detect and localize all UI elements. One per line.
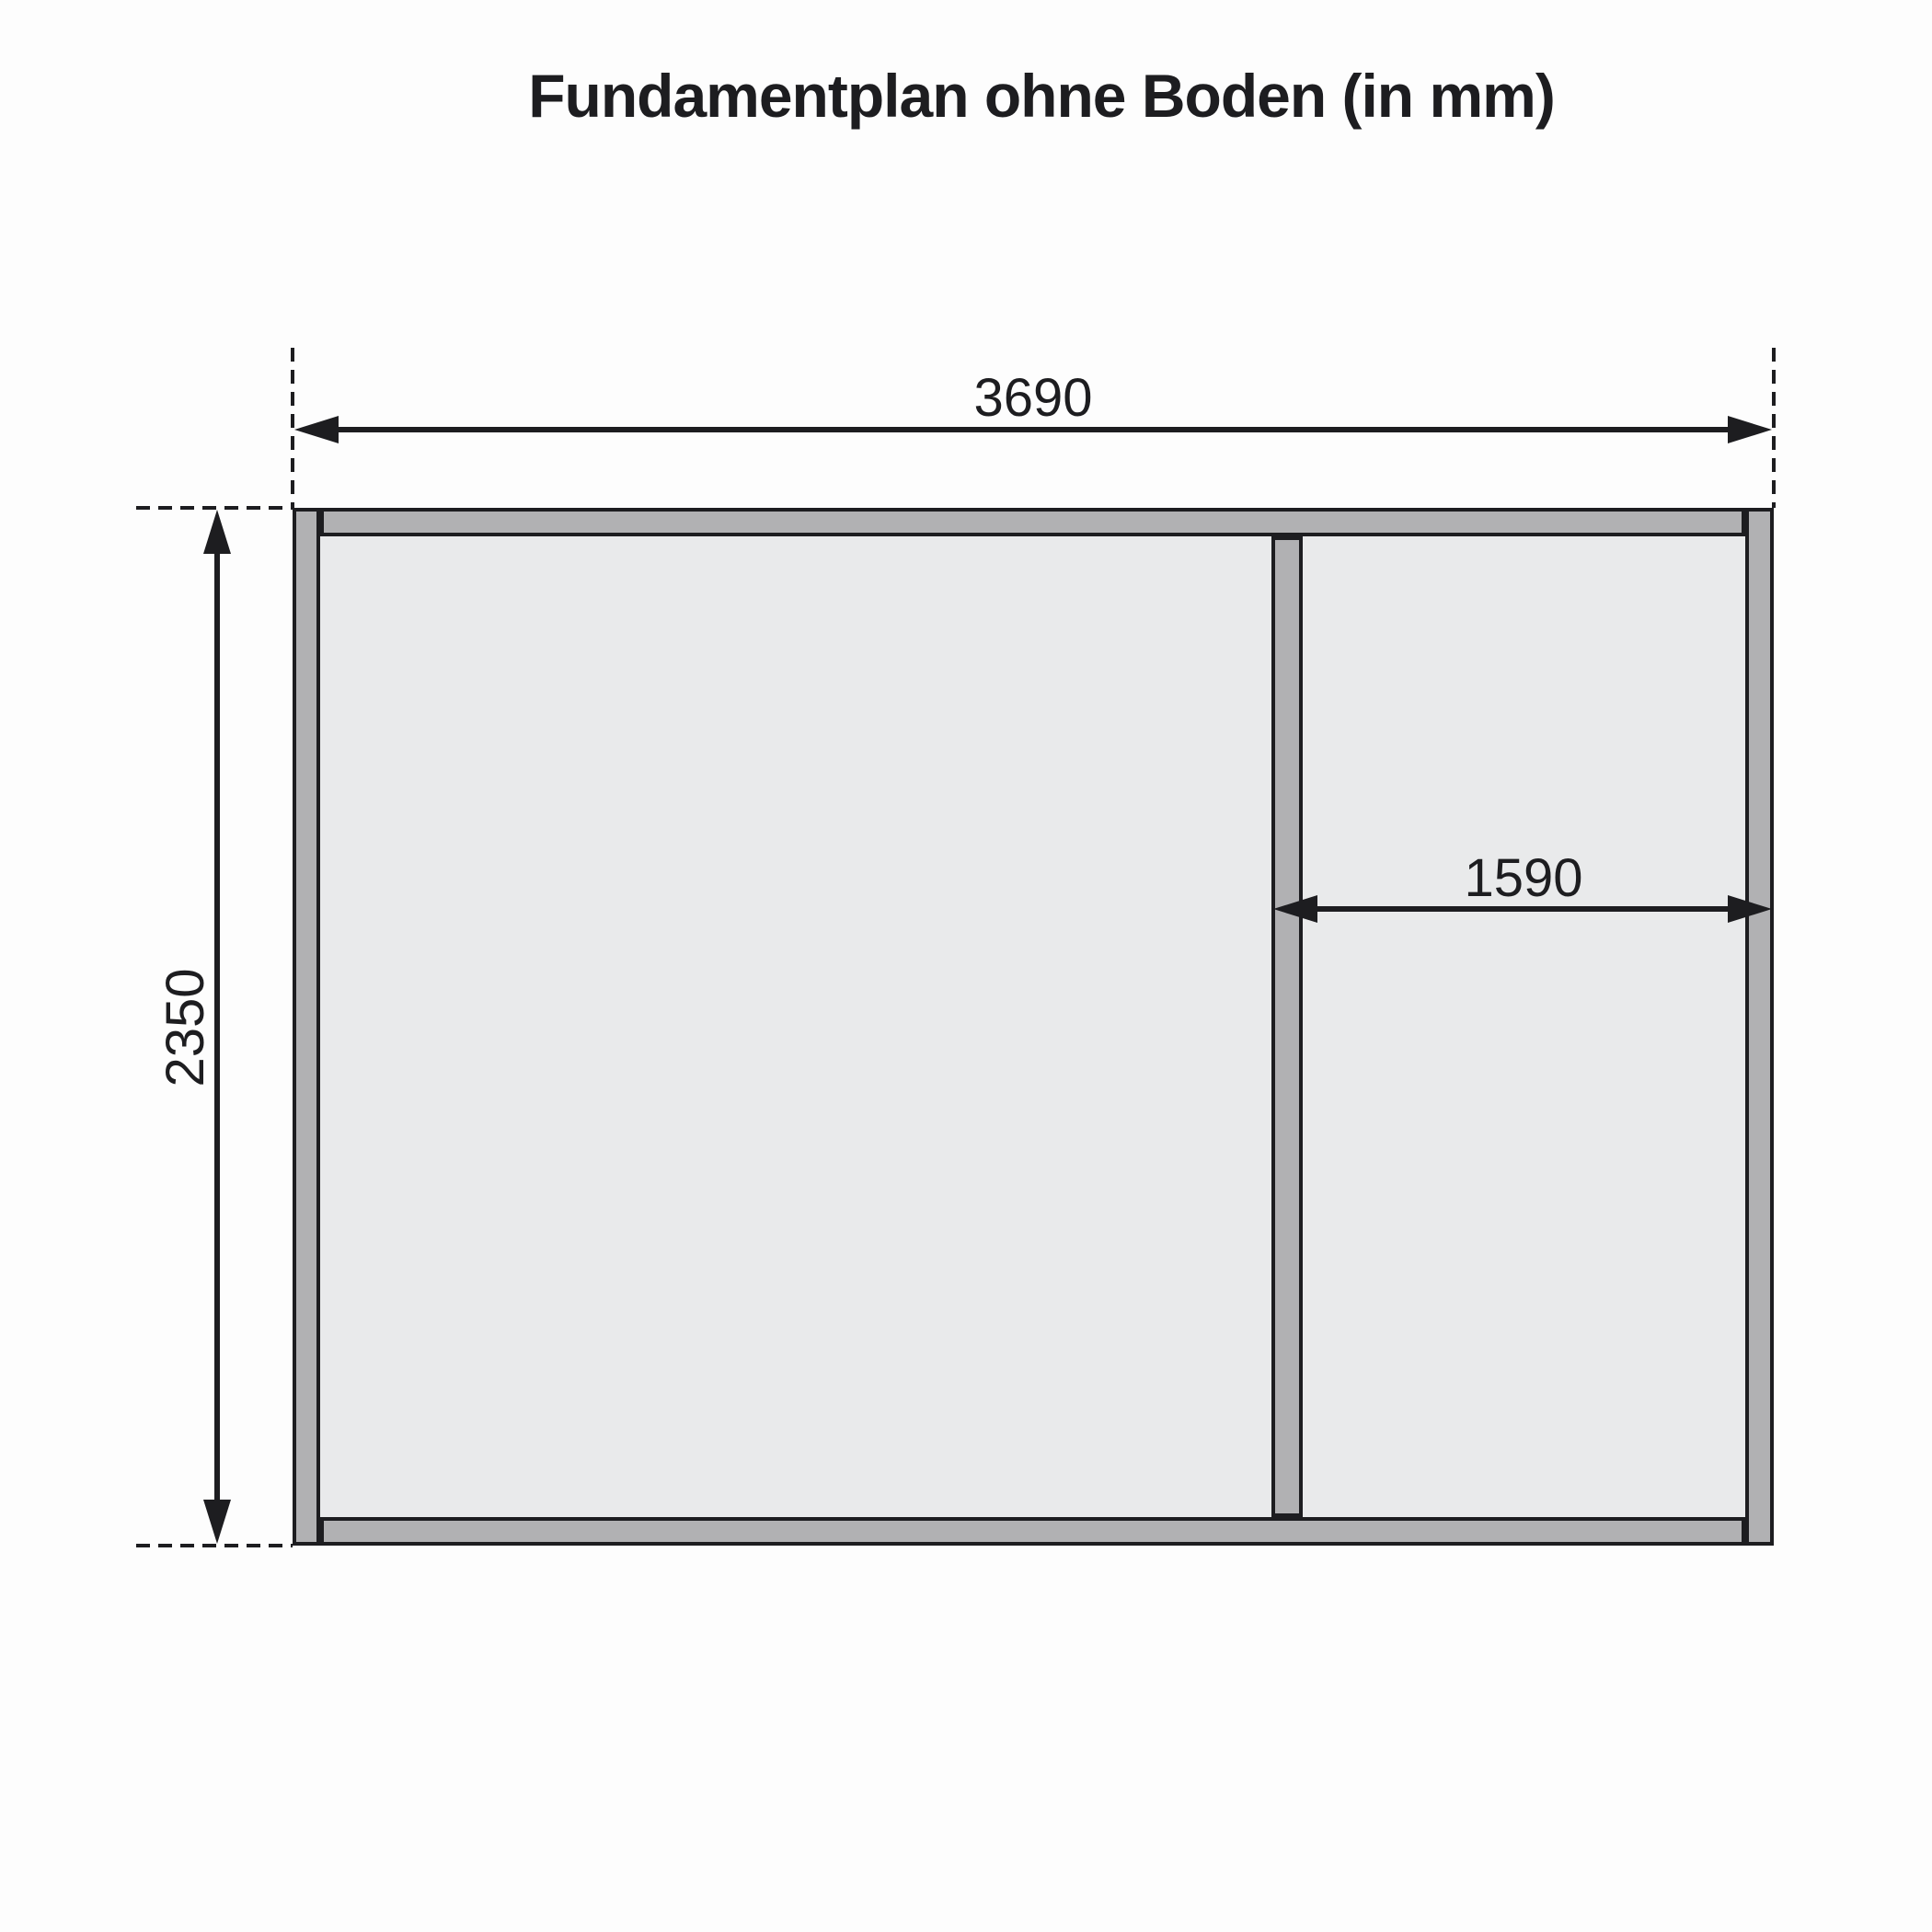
height-dimension-arrow-top-icon xyxy=(203,510,231,554)
frame-bottom-beam xyxy=(322,1519,1743,1544)
height-dimension-label: 2350 xyxy=(155,968,215,1087)
foundation-plan-drawing: 3690 2350 1590 xyxy=(0,0,1932,1932)
height-dimension-arrow-bottom-icon xyxy=(203,1500,231,1544)
frame-right-beam xyxy=(1747,510,1772,1544)
width-dimension-arrow-left-icon xyxy=(294,416,339,443)
width-dimension-arrow-right-icon xyxy=(1728,416,1772,443)
frame-left-beam xyxy=(294,510,318,1544)
frame-top-beam xyxy=(322,510,1743,535)
width-dimension-label: 3690 xyxy=(973,368,1092,428)
bay-dimension-label: 1590 xyxy=(1464,848,1582,908)
partition-beam xyxy=(1273,538,1301,1515)
interior-area xyxy=(320,536,1745,1517)
foundation-plan-page: Fundamentplan ohne Boden (in mm) 3690 23… xyxy=(0,0,1932,1932)
